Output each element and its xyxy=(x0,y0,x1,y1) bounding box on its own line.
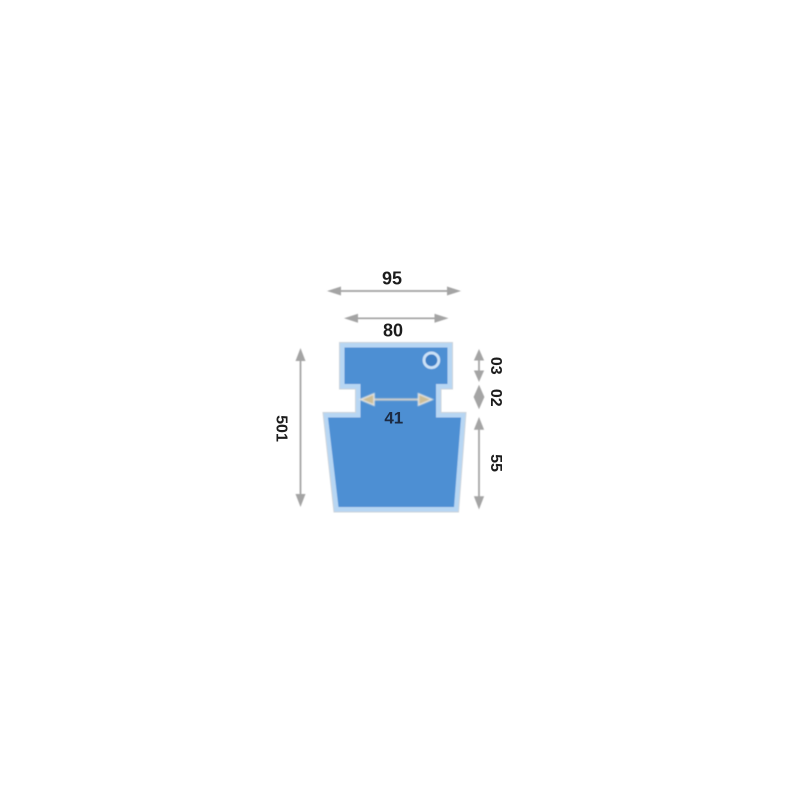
svg-text:95: 95 xyxy=(382,269,402,289)
svg-text:02: 02 xyxy=(487,389,504,407)
svg-text:55: 55 xyxy=(487,454,504,472)
svg-text:501: 501 xyxy=(272,415,289,442)
svg-text:41: 41 xyxy=(384,408,403,427)
svg-text:03: 03 xyxy=(487,357,504,375)
svg-text:80: 80 xyxy=(383,321,403,341)
